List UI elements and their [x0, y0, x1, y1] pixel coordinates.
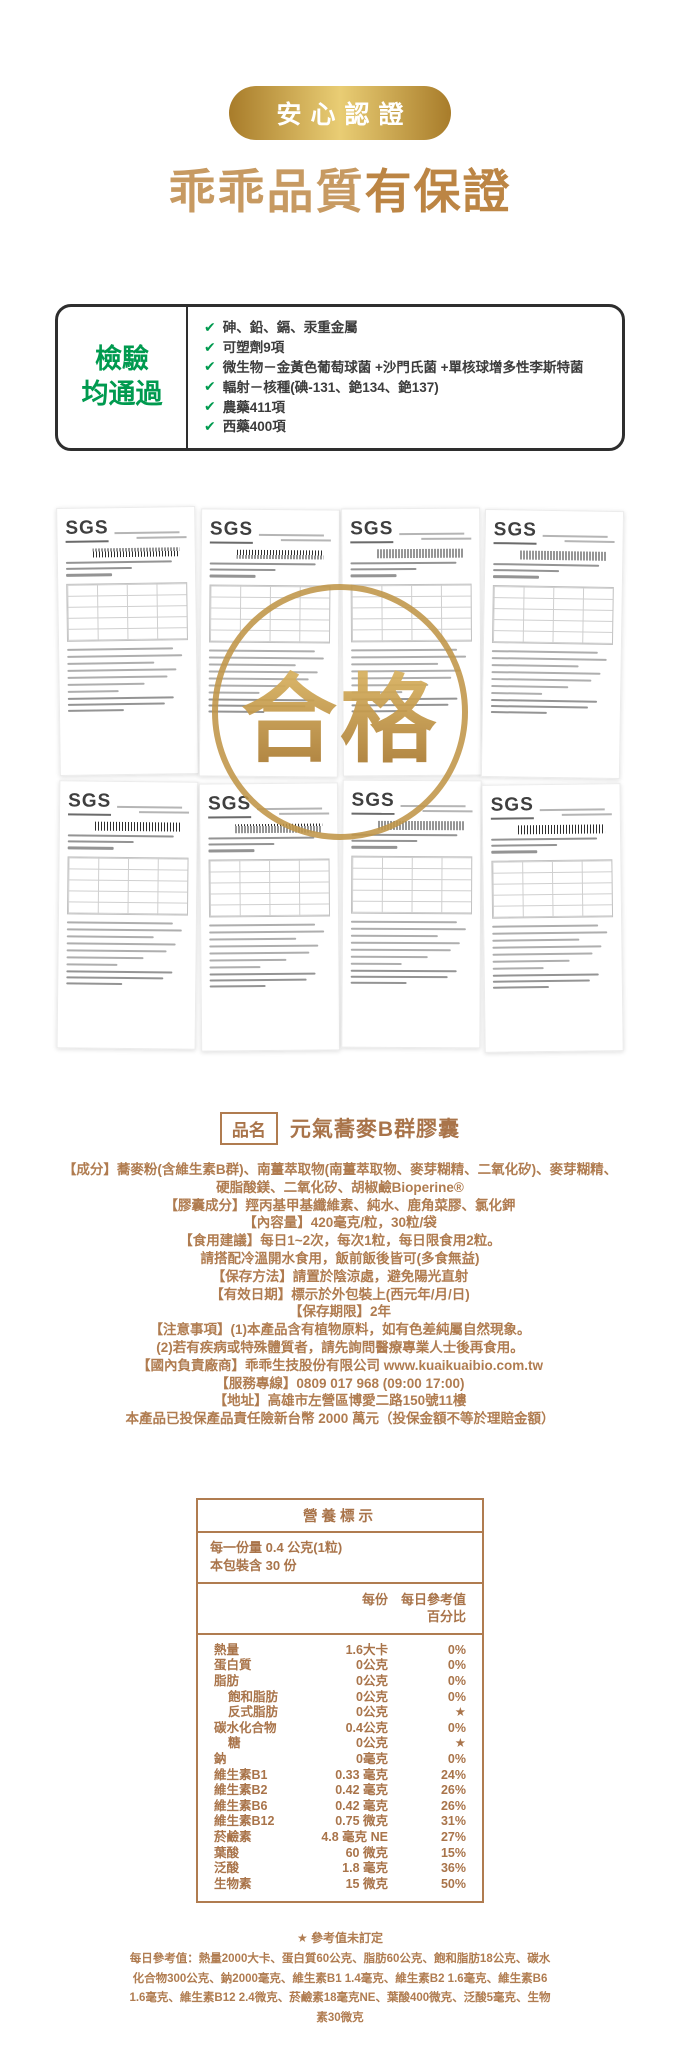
doc-header-lines: [115, 528, 187, 542]
doc-line: [564, 540, 614, 543]
doc-line: [208, 698, 314, 701]
doc-line: [351, 683, 428, 686]
doc-lines: [68, 834, 189, 850]
doc-line: [493, 967, 544, 970]
serving-size: 每一份量 0.4 公克(1粒): [210, 1539, 470, 1558]
header-spacer: [214, 1591, 288, 1625]
col-daily-value: 每日參考值 百分比: [388, 1591, 466, 1625]
barcode-icon: [518, 824, 605, 834]
doc-line: [351, 703, 448, 706]
doc-line: [68, 709, 124, 712]
nutrition-row: 蛋白質0公克0%: [214, 1658, 466, 1674]
doc-line: [259, 533, 323, 536]
sgs-logo: SGS: [65, 517, 108, 543]
nutrient-name: 維生素B2: [214, 1783, 288, 1799]
nutrition-serving-info: 每一份量 0.4 公克(1粒) 本包裝含 30 份: [198, 1533, 482, 1584]
nutrition-rows: 熱量1.6大卡0%蛋白質0公克0%脂肪0公克0%飽和脂肪0公克0%反式脂肪0公克…: [198, 1635, 482, 1902]
nutrient-name: 泛酸: [214, 1861, 288, 1877]
doc-line: [68, 696, 174, 700]
doc-line: [209, 930, 324, 934]
nutrient-amount: 0公克: [288, 1705, 388, 1721]
doc-line: [351, 846, 397, 848]
doc-line: [208, 670, 317, 673]
barcode-icon: [235, 823, 322, 833]
doc-line: [351, 834, 457, 837]
doc-line: [66, 970, 172, 973]
check-icon: ✔: [204, 377, 216, 397]
sgs-certificate: SGS: [199, 782, 340, 1051]
doc-line: [492, 664, 579, 668]
product-detail-line: 【有效日期】標示於外包裝上(西元年/月/日): [30, 1286, 650, 1304]
nutrition-row: 反式脂肪0公克★: [214, 1705, 466, 1721]
doc-line: [350, 934, 437, 937]
doc-table: [208, 858, 329, 917]
nutrition-row: 維生素B10.33 毫克24%: [214, 1768, 466, 1784]
barcode-icon: [377, 821, 464, 830]
nutrient-name: 反式脂肪: [214, 1705, 288, 1721]
doc-table: [66, 582, 188, 642]
doc-line: [351, 697, 457, 700]
inspection-item: ✔西藥400項: [204, 417, 612, 437]
doc-line: [350, 941, 459, 944]
doc-line: [351, 648, 457, 651]
nutrient-amount: 0毫克: [288, 1752, 388, 1768]
nutrition-header-row: 每份 每日參考值 百分比: [198, 1584, 482, 1635]
nutrient-name: 維生素B1: [214, 1768, 288, 1784]
nutrition-row: 生物素15 微克50%: [214, 1877, 466, 1893]
nutrient-name: 生物素: [214, 1877, 288, 1893]
nutrient-amount: 60 微克: [288, 1846, 388, 1862]
inspection-label-line1: 檢驗: [95, 342, 149, 377]
doc-lines: [350, 562, 471, 577]
doc-line: [350, 568, 416, 571]
inspection-item-label: 輻射－核種(碘-131、銫134、銫137): [223, 378, 439, 397]
certificate-grid: SGSSGSSGSSGSSGSSGSSGSSGS: [58, 507, 622, 1046]
doc-line: [208, 704, 305, 707]
doc-line: [492, 850, 538, 853]
sgs-logo: SGS: [210, 518, 253, 543]
doc-lines: [209, 562, 330, 578]
sgs-certificate: SGS: [57, 780, 199, 1049]
doc-line: [208, 837, 314, 840]
doc-table: [350, 855, 471, 914]
product-name-label: 品名: [220, 1112, 278, 1145]
nutrition-row: 糖0公克★: [214, 1736, 466, 1752]
doc-line: [67, 956, 144, 959]
nutrition-row: 維生素B20.42 毫克26%: [214, 1783, 466, 1799]
doc-lines: [492, 924, 613, 970]
doc-line: [351, 669, 460, 672]
doc-line: [68, 847, 114, 850]
doc-line: [67, 942, 176, 946]
doc-line: [209, 958, 286, 961]
doc-line: [209, 951, 309, 954]
nutrient-daily-value: 15%: [388, 1846, 466, 1862]
doc-line: [493, 952, 593, 956]
doc-line: [351, 655, 466, 658]
title-bold: 有保證: [365, 165, 512, 218]
doc-line: [350, 927, 465, 930]
doc-line: [209, 663, 296, 666]
doc-lines: [491, 837, 612, 853]
doc-line: [350, 948, 450, 951]
col-daily-value-line2: 百分比: [388, 1608, 466, 1625]
nutrient-daily-value: 0%: [388, 1721, 466, 1737]
doc-lines: [491, 650, 612, 696]
nutrient-daily-value: 0%: [388, 1643, 466, 1659]
nutrient-name: 蛋白質: [214, 1658, 288, 1674]
doc-lines: [493, 973, 614, 989]
nutrient-name: 碳水化合物: [214, 1721, 288, 1737]
doc-line: [492, 671, 601, 675]
check-icon: ✔: [204, 357, 216, 377]
doc-line: [351, 691, 402, 694]
certificate-header: SGS: [68, 790, 189, 816]
nutrient-name: 脂肪: [214, 1674, 288, 1690]
doc-line: [493, 563, 599, 567]
inspection-box: 檢驗 均通過 ✔砷、鉛、鎘、汞重金屬✔可塑劑9項✔微生物－金黃色葡萄球菌 +沙門…: [55, 304, 625, 451]
inspection-item-label: 可塑劑9項: [223, 338, 285, 357]
doc-header-lines: [257, 804, 329, 818]
doc-line: [66, 574, 112, 577]
nutrient-amount: 0公克: [288, 1674, 388, 1690]
servings-per-pack: 本包裝含 30 份: [210, 1557, 470, 1576]
doc-line: [491, 699, 597, 703]
nutrition-row: 碳水化合物0.4公克0%: [214, 1721, 466, 1737]
doc-line: [208, 684, 285, 687]
product-detail-line: 請搭配冷溫開水食用，飯前飯後皆可(多食無益): [30, 1250, 650, 1268]
doc-lines: [67, 647, 188, 693]
doc-line: [400, 805, 464, 808]
doc-line: [209, 649, 315, 652]
product-info-page: 安心認證 乖乖品質有保證 檢驗 均通過 ✔砷、鉛、鎘、汞重金屬✔可塑劑9項✔微生…: [0, 0, 680, 2068]
check-icon: ✔: [204, 397, 216, 417]
barcode-icon: [236, 550, 323, 560]
doc-line: [420, 537, 470, 540]
doc-line: [278, 812, 328, 815]
sgs-certificate: SGS: [199, 508, 340, 777]
doc-lines: [66, 921, 187, 967]
doc-line: [491, 844, 557, 847]
product-name-row: 品名 元氣蕎麥B群膠囊: [0, 1112, 680, 1145]
nutrient-daily-value: ★: [388, 1705, 466, 1721]
doc-line: [493, 979, 590, 982]
doc-line: [492, 678, 592, 682]
nutrient-daily-value: 24%: [388, 1768, 466, 1784]
doc-line: [491, 692, 542, 695]
footnote-star: ★ 參考值未訂定: [125, 1929, 555, 1946]
inspection-label: 檢驗 均通過: [58, 307, 188, 448]
doc-line: [208, 691, 259, 694]
sgs-logo: SGS: [208, 793, 251, 818]
footnote-text: 每日參考值：熱量2000大卡、蛋白質60公克、脂肪60公克、飽和脂肪18公克、碳…: [125, 1950, 555, 2028]
nutrition-row: 泛酸1.8 毫克36%: [214, 1861, 466, 1877]
certificate-header: SGS: [350, 518, 471, 544]
nutrition-row: 脂肪0公克0%: [214, 1674, 466, 1690]
doc-line: [493, 569, 559, 572]
nutrient-name: 鈉: [214, 1752, 288, 1768]
product-detail-line: 【地址】高雄市左營區博愛二路150號11樓: [30, 1392, 650, 1410]
product-detail-line: 【內容量】420毫克/粒，30粒/袋: [30, 1214, 650, 1232]
nutrition-row: 熱量1.6大卡0%: [214, 1643, 466, 1659]
doc-line: [67, 928, 182, 932]
doc-line: [66, 560, 172, 564]
certificate-header: SGS: [208, 792, 329, 818]
doc-table: [492, 859, 613, 918]
doc-line: [350, 574, 396, 577]
doc-table: [492, 585, 614, 645]
doc-line: [209, 575, 255, 578]
barcode-icon: [94, 822, 181, 832]
doc-line: [492, 685, 569, 689]
product-detail-line: 【成分】蕎麥粉(含維生素B群)、南薑萃取物(南薑萃取物、麥芽糊精、二氧化矽)、麥…: [30, 1161, 650, 1179]
doc-line: [493, 938, 580, 942]
doc-line: [351, 840, 417, 843]
inspection-item-label: 微生物－金黃色葡萄球菌 +沙門氏菌 +單核球增多性李斯特菌: [223, 358, 584, 377]
doc-line: [350, 955, 427, 958]
page-title: 乖乖品質有保證: [0, 166, 680, 218]
check-icon: ✔: [204, 318, 216, 338]
doc-line: [67, 921, 173, 925]
nutrient-name: 維生素B6: [214, 1799, 288, 1815]
nutrient-daily-value: ★: [388, 1736, 466, 1752]
nutrient-amount: 15 微克: [288, 1877, 388, 1893]
product-detail-line: 【食用建議】每日1~2次，每次1粒，每日限食用2粒。: [30, 1232, 650, 1250]
nutrition-row: 維生素B60.42 毫克26%: [214, 1799, 466, 1815]
nutrient-amount: 1.8 毫克: [288, 1861, 388, 1877]
doc-line: [209, 978, 306, 981]
sgs-certificate: SGS: [481, 509, 624, 779]
doc-header-lines: [117, 802, 189, 816]
doc-line: [257, 807, 321, 810]
product-detail-line: 【國內負責廠商】乖乖生技股份有限公司 www.kuaikuaibio.com.t…: [30, 1357, 650, 1375]
doc-header-lines: [259, 530, 331, 544]
doc-table: [350, 583, 471, 642]
nutrient-daily-value: 26%: [388, 1783, 466, 1799]
nutrition-row: 葉酸60 微克15%: [214, 1846, 466, 1862]
nutrient-amount: 0公克: [288, 1690, 388, 1706]
certificate-header: SGS: [351, 790, 472, 816]
doc-line: [115, 531, 179, 534]
sgs-certificate: SGS: [341, 507, 482, 776]
product-name: 元氣蕎麥B群膠囊: [290, 1113, 460, 1143]
doc-line: [209, 972, 315, 975]
nutrient-amount: 1.6大卡: [288, 1643, 388, 1659]
doc-line: [543, 534, 607, 537]
doc-line: [67, 935, 154, 938]
doc-line: [209, 985, 265, 988]
product-detail-line: 【服務專線】0809 017 968 (09:00 17:00): [30, 1375, 650, 1393]
inspection-item-label: 西藥400項: [223, 417, 286, 436]
certificate-header: SGS: [210, 518, 331, 544]
product-detail-line: 本產品已投保產品責任險新台幣 2000 萬元（投保金額不等於理賠金額）: [30, 1410, 650, 1428]
nutrition-row: 鈉0毫克0%: [214, 1752, 466, 1768]
doc-line: [209, 944, 318, 947]
doc-line: [66, 963, 117, 966]
footnote-section: ★ 參考值未訂定 每日參考值：熱量2000大卡、蛋白質60公克、脂肪60公克、飽…: [125, 1929, 555, 2028]
doc-line: [493, 959, 570, 962]
nutrition-title: 營養標示: [198, 1500, 482, 1533]
inspection-item: ✔可塑劑9項: [204, 338, 612, 358]
doc-line: [67, 675, 167, 679]
nutrient-name: 熱量: [214, 1643, 288, 1659]
col-per-serving: 每份: [288, 1591, 388, 1625]
nutrient-daily-value: 31%: [388, 1814, 466, 1830]
doc-line: [493, 973, 599, 976]
doc-lines: [351, 697, 472, 712]
nutrition-row: 菸鹼素4.8 毫克 NE27%: [214, 1830, 466, 1846]
doc-line: [280, 539, 330, 542]
doc-line: [540, 808, 604, 811]
doc-lines: [208, 836, 329, 852]
doc-line: [492, 931, 607, 935]
doc-line: [208, 677, 308, 680]
doc-line: [209, 966, 260, 969]
doc-line: [492, 650, 598, 654]
nutrition-row: 飽和脂肪0公克0%: [214, 1690, 466, 1706]
doc-line: [208, 849, 254, 852]
doc-line: [350, 920, 456, 923]
doc-line: [67, 654, 182, 658]
check-icon: ✔: [204, 338, 216, 358]
nutrient-name: 飽和脂肪: [214, 1690, 288, 1706]
product-detail-line: 【保存期限】2年: [30, 1303, 650, 1321]
sgs-certificate: SGS: [56, 506, 198, 776]
sgs-certificate: SGS: [341, 780, 481, 1049]
doc-line: [350, 982, 406, 984]
nutrient-amount: 4.8 毫克 NE: [288, 1830, 388, 1846]
doc-lines: [209, 923, 330, 969]
nutrient-amount: 0.42 毫克: [288, 1799, 388, 1815]
doc-line: [351, 662, 438, 665]
sgs-logo: SGS: [494, 519, 538, 545]
doc-line: [422, 810, 472, 812]
doc-header-lines: [399, 529, 471, 543]
doc-line: [491, 711, 547, 714]
inspection-item-label: 農藥411項: [223, 398, 285, 417]
doc-lines: [351, 834, 472, 849]
doc-line: [350, 962, 401, 965]
doc-line: [66, 976, 163, 979]
inspection-list: ✔砷、鉛、鎘、汞重金屬✔可塑劑9項✔微生物－金黃色葡萄球菌 +沙門氏菌 +單核球…: [188, 307, 622, 448]
doc-line: [209, 656, 324, 660]
doc-line: [493, 575, 539, 578]
doc-header-lines: [540, 805, 612, 819]
doc-line: [399, 532, 463, 535]
sgs-logo: SGS: [68, 790, 111, 815]
nutrient-amount: 0公克: [288, 1658, 388, 1674]
barcode-icon: [92, 547, 179, 557]
nutrient-daily-value: 0%: [388, 1752, 466, 1768]
doc-lines: [66, 970, 187, 986]
doc-line: [492, 657, 607, 661]
doc-line: [208, 843, 274, 846]
sgs-logo: SGS: [351, 790, 394, 815]
inspection-item-label: 砷、鉛、鎘、汞重金屬: [223, 318, 358, 337]
doc-line: [209, 562, 315, 565]
sgs-logo: SGS: [350, 518, 393, 543]
nutrient-amount: 0.75 微克: [288, 1814, 388, 1830]
doc-line: [351, 676, 451, 679]
doc-line: [68, 840, 134, 843]
sgs-certificate: SGS: [482, 783, 624, 1053]
doc-line: [67, 647, 173, 651]
doc-lines: [493, 563, 614, 579]
doc-line: [492, 924, 598, 928]
nutrient-daily-value: 50%: [388, 1877, 466, 1893]
inspection-item: ✔輻射－核種(碘-131、銫134、銫137): [204, 377, 612, 397]
inspection-item: ✔砷、鉛、鎘、汞重金屬: [204, 318, 612, 338]
certificate-header: SGS: [65, 516, 186, 543]
doc-table: [67, 856, 188, 915]
doc-line: [117, 805, 181, 808]
certificate-header: SGS: [491, 793, 612, 819]
product-detail-line: 【膠囊成分】羥丙基甲基纖維素、純水、鹿角菜膠、氯化鉀: [30, 1197, 650, 1215]
doc-line: [493, 945, 602, 949]
doc-line: [139, 811, 189, 814]
doc-lines: [350, 920, 471, 965]
nutrient-daily-value: 27%: [388, 1830, 466, 1846]
doc-line: [136, 536, 186, 539]
doc-lines: [66, 560, 187, 576]
doc-header-lines: [400, 802, 472, 816]
nutrient-amount: 0.4公克: [288, 1721, 388, 1737]
doc-line: [493, 986, 549, 989]
doc-line: [66, 982, 122, 985]
doc-line: [208, 710, 264, 713]
doc-table: [209, 584, 330, 643]
doc-header-lines: [543, 531, 615, 545]
doc-line: [66, 567, 132, 570]
nutrition-row: 維生素B120.75 微克31%: [214, 1814, 466, 1830]
doc-line: [209, 569, 275, 572]
col-daily-value-line1: 每日參考值: [388, 1591, 466, 1608]
doc-line: [67, 949, 167, 953]
doc-lines: [208, 649, 329, 695]
product-detail-line: (2)若有疾病或特殊體質者，請先詢問醫療專業人士後再食用。: [30, 1339, 650, 1357]
check-icon: ✔: [204, 417, 216, 437]
nutrient-name: 糖: [214, 1736, 288, 1752]
nutrient-daily-value: 36%: [388, 1861, 466, 1877]
nutrient-daily-value: 0%: [388, 1674, 466, 1690]
doc-line: [68, 682, 145, 686]
doc-lines: [350, 969, 471, 984]
doc-line: [209, 937, 296, 940]
product-details: 【成分】蕎麥粉(含維生素B群)、南薑萃取物(南薑萃取物、麥芽糊精、二氧化矽)、麥…: [30, 1161, 650, 1428]
inspection-label-line2: 均通過: [82, 377, 163, 412]
inspection-item: ✔農藥411項: [204, 397, 612, 417]
doc-line: [209, 923, 315, 926]
doc-line: [350, 562, 456, 565]
barcode-icon: [376, 549, 463, 559]
certified-badge: 安心認證: [229, 86, 450, 140]
doc-line: [351, 710, 407, 713]
doc-lines: [209, 972, 330, 988]
nutrient-daily-value: 0%: [388, 1658, 466, 1674]
title-regular: 乖乖品質: [169, 165, 365, 218]
sgs-logo: SGS: [491, 794, 534, 820]
doc-line: [68, 834, 174, 837]
nutrient-amount: 0.33 毫克: [288, 1768, 388, 1784]
doc-lines: [351, 648, 472, 693]
nutrient-name: 菸鹼素: [214, 1830, 288, 1846]
doc-line: [350, 969, 456, 972]
certificates-section: SGSSGSSGSSGSSGSSGSSGSSGS 合格: [58, 507, 622, 1046]
doc-lines: [491, 699, 612, 715]
nutrient-daily-value: 0%: [388, 1690, 466, 1706]
doc-line: [491, 705, 588, 709]
nutrient-name: 維生素B12: [214, 1814, 288, 1830]
